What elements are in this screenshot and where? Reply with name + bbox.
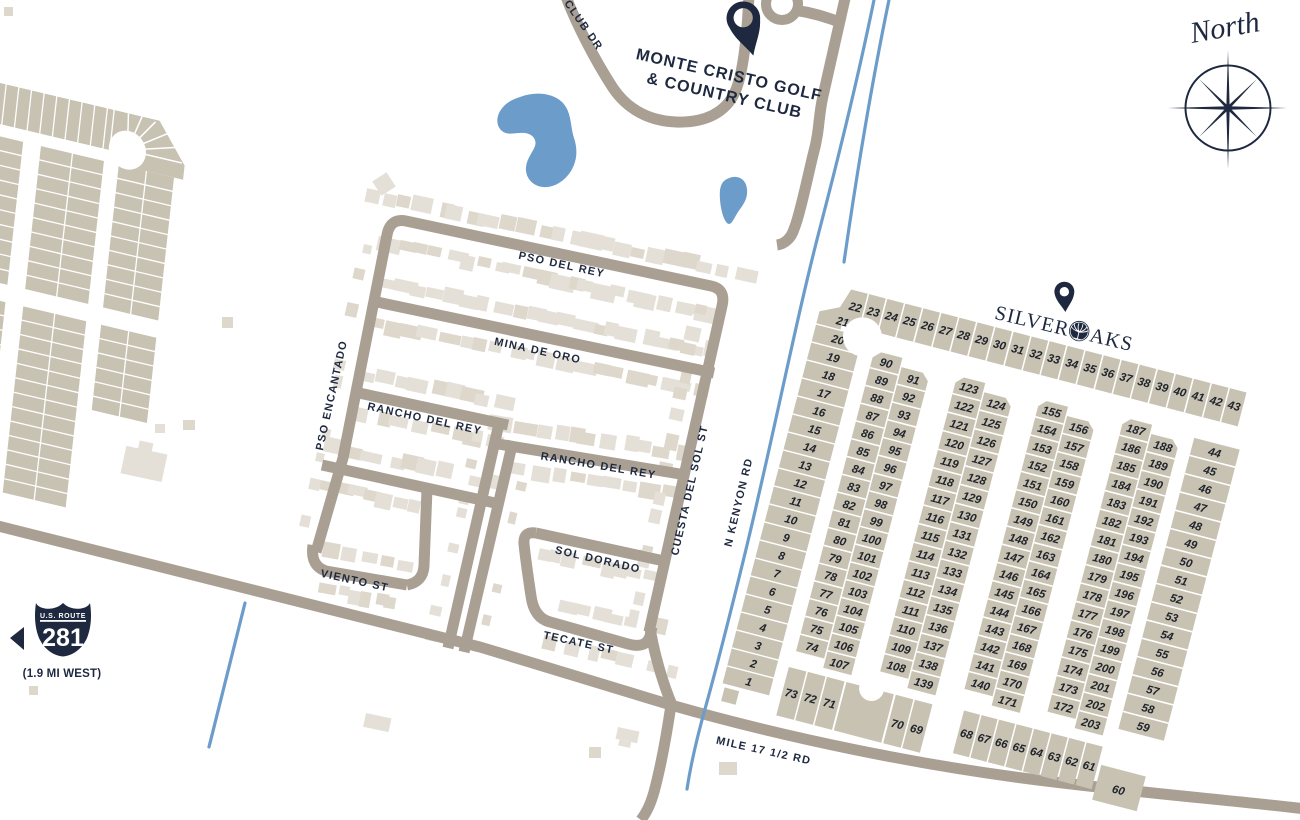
svg-text:(1.9 MI WEST): (1.9 MI WEST) (23, 668, 102, 680)
svg-text:281: 281 (42, 624, 84, 652)
svg-text:U.S. ROUTE: U.S. ROUTE (40, 613, 86, 620)
